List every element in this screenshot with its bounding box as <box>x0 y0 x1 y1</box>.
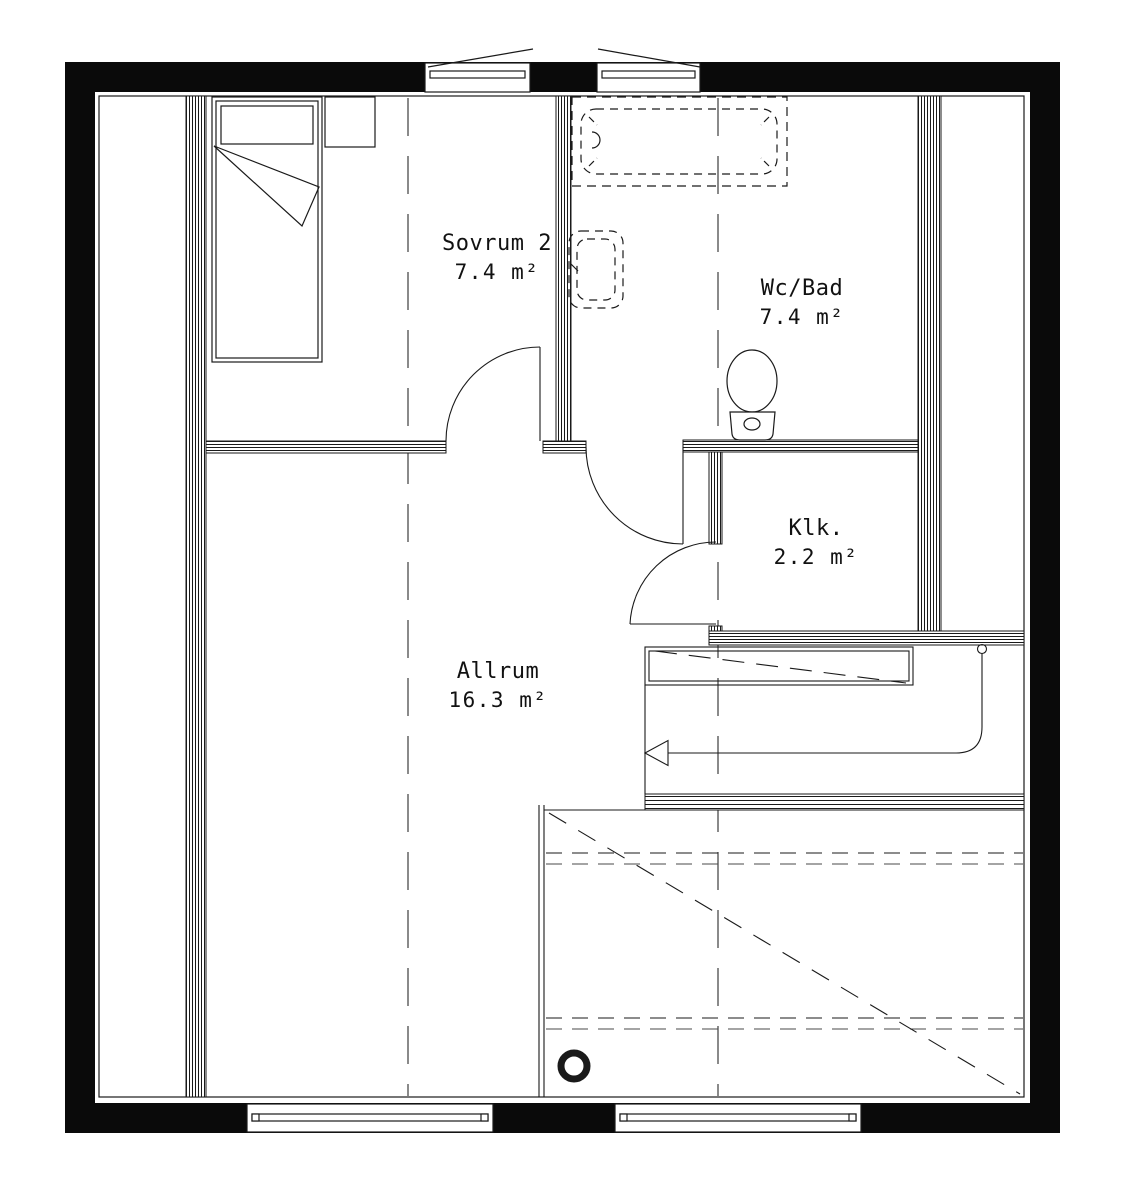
door-swing-arc <box>446 347 540 441</box>
pillow <box>221 106 313 144</box>
washbasin <box>569 231 623 308</box>
toilet <box>727 350 777 440</box>
klk-door <box>630 542 716 624</box>
room-label-wcbad: Wc/Bad 7.4 m² <box>760 274 845 332</box>
exterior-wall-left <box>65 62 95 1133</box>
stair-arrow-head <box>645 741 668 766</box>
roof-window-1 <box>425 49 533 92</box>
room-area: 7.4 m² <box>442 258 552 287</box>
wall-klk-west <box>709 452 722 544</box>
room-name: Wc/Bad <box>760 274 845 303</box>
room-name: Sovrum 2 <box>442 229 552 258</box>
wall-stub-hall <box>543 441 586 453</box>
room-name: Allrum <box>448 657 547 686</box>
chimney-pipe <box>561 1053 587 1079</box>
bottom-window-1 <box>247 1104 493 1132</box>
exterior-wall-right <box>1030 62 1060 1133</box>
toilet-bowl <box>727 350 777 412</box>
stair <box>645 645 987 795</box>
wall-sovrum-south <box>206 441 446 453</box>
nightstand <box>325 97 375 147</box>
stair-break-line <box>655 651 906 683</box>
attic-diagonal <box>549 813 1020 1094</box>
wcbad-door <box>586 447 683 544</box>
sovrum2-door <box>446 347 540 441</box>
stair-opening-inner <box>649 651 909 681</box>
room-area: 16.3 m² <box>448 686 547 715</box>
room-label-sovrum2: Sovrum 2 7.4 m² <box>442 229 552 287</box>
wall-stairwell-west <box>918 96 941 632</box>
stair-arrow-path <box>667 654 982 754</box>
room-area: 7.4 m² <box>760 303 845 332</box>
interior-walls <box>186 96 1024 1097</box>
faucet-mark <box>592 132 600 148</box>
attic-storage <box>539 805 1023 1097</box>
exterior-wall-bottom <box>65 1103 1060 1133</box>
floor-plan-drawing <box>0 0 1128 1194</box>
room-label-klk: Klk. 2.2 m² <box>774 514 859 572</box>
blanket-fold <box>214 146 319 226</box>
door-swing-arc <box>586 447 683 544</box>
bathtub <box>572 97 787 186</box>
doors <box>446 347 716 624</box>
wall-klk-south <box>709 631 1024 645</box>
knee-wall-left <box>186 96 206 1097</box>
room-label-allrum: Allrum 16.3 m² <box>448 657 547 715</box>
roof-window-2 <box>597 49 700 92</box>
exterior-wall-top <box>65 62 1060 92</box>
floor-plan: Sovrum 2 7.4 m² Wc/Bad 7.4 m² Klk. 2.2 m… <box>0 0 1128 1194</box>
bed <box>212 97 322 362</box>
room-area: 2.2 m² <box>774 543 859 572</box>
toilet-tank <box>730 412 775 440</box>
room-name: Klk. <box>774 514 859 543</box>
stair-railing-wall <box>645 794 1024 810</box>
stair-arrow-start <box>978 645 987 654</box>
wall-bath-south <box>683 440 918 452</box>
door-swing-arc <box>630 542 716 624</box>
bottom-window-2 <box>615 1104 861 1132</box>
